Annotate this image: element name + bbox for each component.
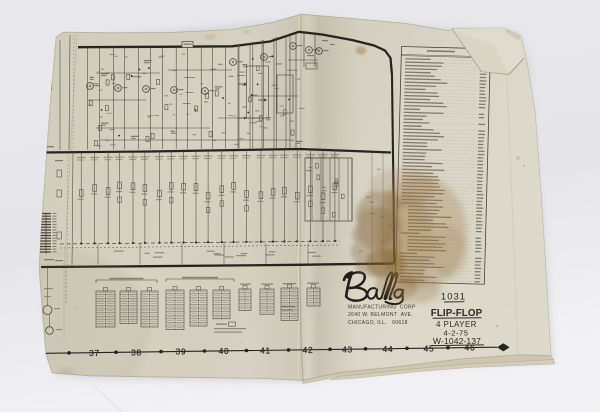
svg-text:39: 39	[176, 347, 187, 357]
svg-text:38: 38	[131, 347, 142, 357]
svg-text:MANUFACTURING CORP: MANUFACTURING CORP	[348, 305, 416, 311]
svg-text:2640 W. BELMONT AVE.: 2640 W. BELMONT AVE.	[348, 312, 413, 318]
svg-text:44: 44	[383, 344, 394, 354]
svg-text:43: 43	[342, 344, 353, 354]
svg-text:37: 37	[89, 348, 100, 358]
svg-text:FLIP-FLOP: FLIP-FLOP	[431, 308, 483, 319]
svg-text:CHICAGO, ILL. 60618: CHICAGO, ILL. 60618	[348, 320, 408, 326]
svg-text:1031: 1031	[441, 292, 466, 303]
svg-text:41: 41	[260, 346, 271, 356]
svg-text:42: 42	[303, 345, 314, 355]
svg-text:W-1042-137: W-1042-137	[433, 336, 481, 346]
svg-text:40: 40	[219, 346, 230, 356]
